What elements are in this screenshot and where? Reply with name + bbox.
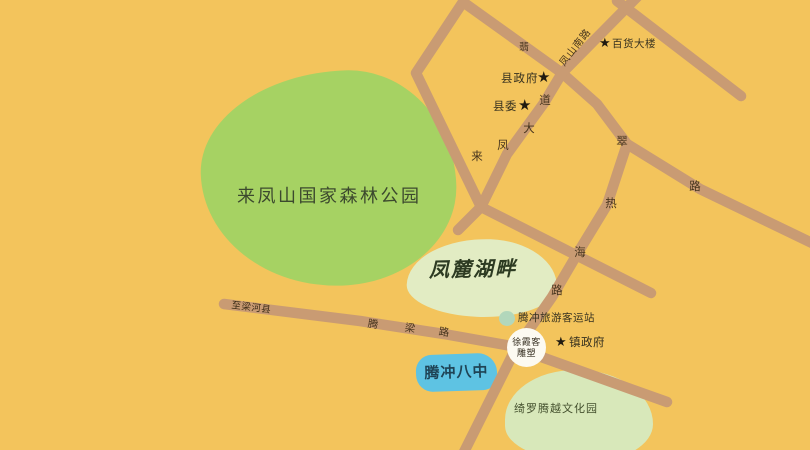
road-char-tengliang-3: 路 [438, 324, 450, 340]
tourist-map-canvas: 来凤山国家森林公园 凤麓湖畔 腾冲八中 绮罗腾越文化园 凤山南路 至梁河县 来 … [0, 0, 810, 450]
county-committee-label: 县委 [493, 101, 517, 114]
bus-station-label: 腾冲旅游客运站 [518, 312, 595, 324]
road-network [0, 0, 810, 450]
school-label: 腾冲八中 [415, 353, 497, 393]
culture-park-label: 绮罗腾越文化园 [514, 403, 598, 416]
department-store-label: 百货大楼 [612, 38, 656, 50]
xuxiake-statue-label-line2: 雕塑 [517, 348, 536, 359]
road-char-feicui-2: 翠 [616, 133, 628, 149]
county-government-label: 县政府 [501, 73, 539, 86]
road-char-laifeng-4: 道 [539, 92, 551, 108]
county-government-star-icon: ★ [537, 70, 550, 85]
town-government-star-icon: ★ [555, 335, 567, 348]
road-char-feicui-1: 翡 [519, 39, 529, 54]
road-char-rehai-3: 路 [551, 282, 563, 298]
xuxiake-statue-label-line1: 徐霞客 [512, 337, 541, 348]
road-char-rehai-1: 热 [605, 195, 617, 211]
bus-station-dot [499, 311, 515, 326]
department-store-star-icon: ★ [599, 36, 611, 49]
road-char-feicui-3: 路 [689, 178, 701, 194]
road-loop-west [416, 2, 481, 207]
county-committee-star-icon: ★ [518, 98, 531, 113]
xuxiake-statue-circle: 徐霞客 雕塑 [507, 328, 546, 367]
road-char-tengliang-1: 腾 [367, 316, 379, 332]
forest-park-label: 来凤山国家森林公园 [237, 186, 422, 207]
road-char-laifeng-2: 凤 [497, 137, 509, 153]
town-government-label: 镇政府 [569, 337, 605, 350]
road-char-tengliang-2: 梁 [404, 320, 416, 336]
road-char-laifeng-1: 来 [471, 148, 483, 164]
lake-label: 凤麓湖畔 [429, 258, 517, 283]
road-char-rehai-2: 海 [574, 244, 586, 260]
road-char-laifeng-3: 大 [523, 120, 535, 136]
